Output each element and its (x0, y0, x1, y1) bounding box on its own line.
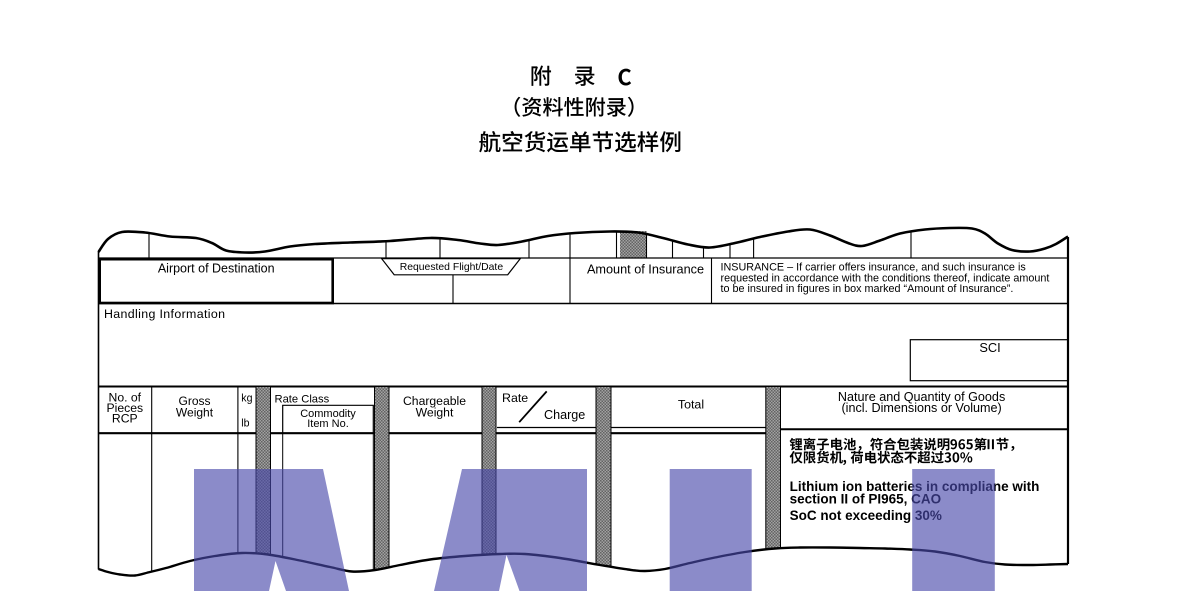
svg-text:Item No.: Item No. (307, 418, 349, 430)
svg-text:Weight: Weight (176, 406, 214, 420)
svg-text:to be insured in figures in bo: to be insured in figures in box marked “… (721, 283, 1014, 295)
svg-text:SCI: SCI (979, 340, 1000, 355)
svg-text:Rate: Rate (502, 391, 528, 405)
svg-text:Requested Flight/Date: Requested Flight/Date (400, 262, 504, 273)
svg-text:Amount of Insurance: Amount of Insurance (587, 262, 704, 276)
svg-text:kg: kg (241, 392, 252, 404)
svg-text:lb: lb (241, 417, 249, 429)
svg-text:Rate Class: Rate Class (275, 394, 330, 406)
svg-text:Weight: Weight (416, 406, 454, 420)
svg-text:RCP: RCP (112, 411, 138, 425)
svg-text:Total: Total (678, 398, 704, 412)
svg-text:Airport of Destination: Airport of Destination (158, 261, 275, 275)
svg-text:Charge: Charge (544, 408, 585, 422)
svg-text:Handling Information: Handling Information (104, 307, 225, 321)
svg-text:(incl. Dimensions or Volume): (incl. Dimensions or Volume) (841, 401, 1001, 415)
